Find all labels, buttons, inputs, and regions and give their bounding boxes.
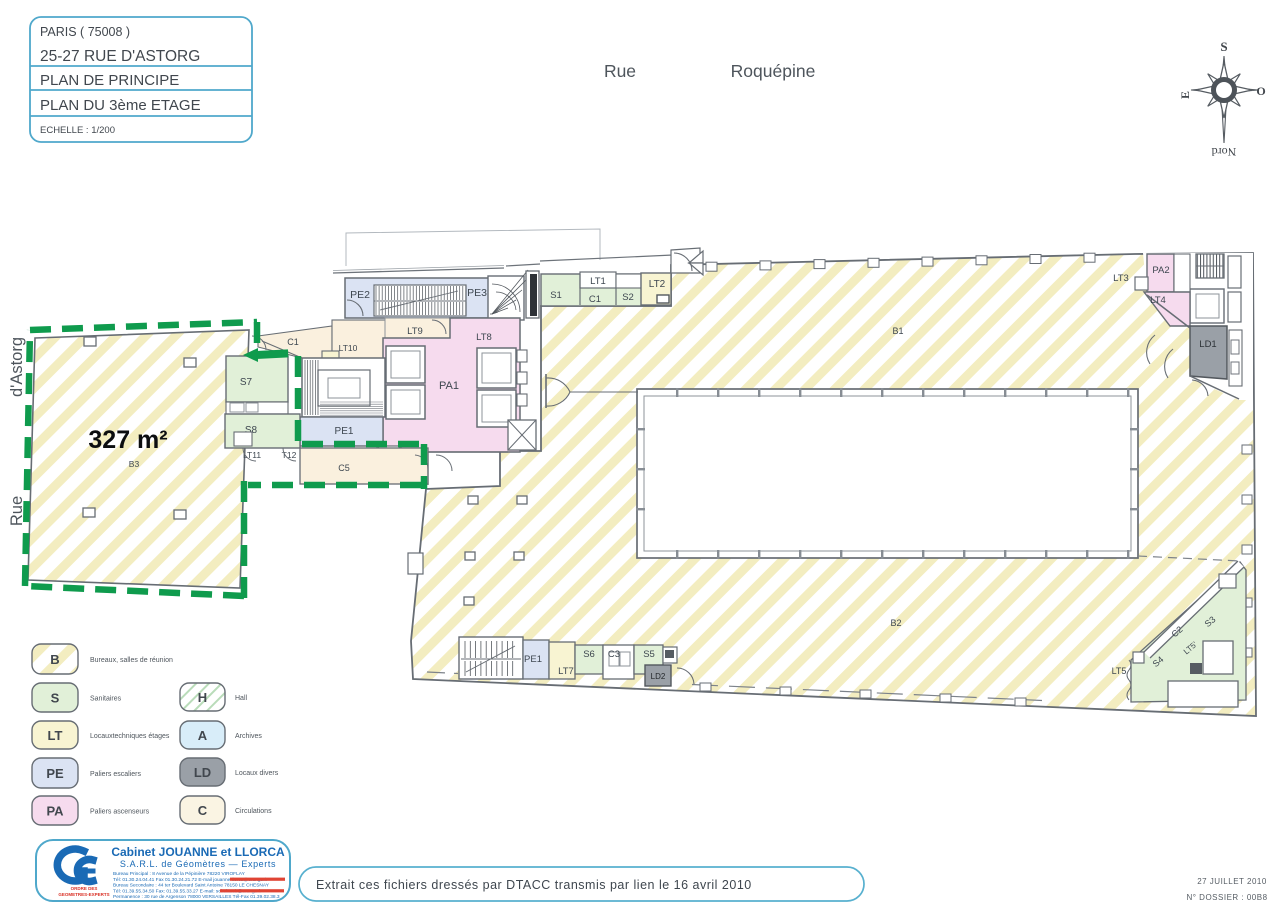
svg-text:ECHELLE : 1/200: ECHELLE : 1/200: [40, 125, 115, 136]
svg-text:Rue: Rue: [8, 496, 26, 526]
svg-text:LT: LT: [48, 728, 63, 743]
svg-text:S1: S1: [550, 290, 562, 301]
svg-text:LD: LD: [194, 765, 211, 780]
svg-text:27 JUILLET 2010: 27 JUILLET 2010: [1197, 877, 1267, 886]
svg-text:Roquépine: Roquépine: [731, 61, 816, 81]
svg-text:C1: C1: [287, 337, 299, 347]
svg-text:C1: C1: [589, 294, 601, 305]
svg-text:C3: C3: [608, 649, 620, 660]
svg-text:S5: S5: [643, 649, 655, 660]
svg-text:PE: PE: [46, 766, 64, 781]
svg-text:LT4: LT4: [1150, 295, 1166, 306]
svg-text:N° DOSSIER : 00B8: N° DOSSIER : 00B8: [1186, 893, 1267, 902]
svg-text:B3: B3: [129, 459, 140, 469]
svg-text:LT11: LT11: [243, 450, 261, 460]
svg-text:PLAN DE PRINCIPE: PLAN DE PRINCIPE: [40, 72, 179, 89]
svg-text:S: S: [1220, 39, 1227, 54]
svg-text:LT5: LT5: [1112, 666, 1127, 676]
svg-text:LD1: LD1: [1199, 339, 1216, 350]
svg-text:Circulations: Circulations: [235, 808, 272, 815]
svg-text:LT2: LT2: [649, 279, 666, 290]
svg-text:Paliers escaliers: Paliers escaliers: [90, 771, 141, 778]
svg-text:LD2: LD2: [651, 672, 666, 681]
svg-text:C: C: [198, 803, 208, 818]
svg-text:B2: B2: [890, 618, 901, 628]
svg-text:ORDRE DES: ORDRE DES: [71, 886, 98, 891]
svg-text:A: A: [198, 728, 208, 743]
svg-text:Nord: Nord: [1212, 145, 1237, 159]
svg-text:Bureau Principal : 8 Avenue de: Bureau Principal : 8 Avenue de la Pépini…: [113, 871, 246, 877]
svg-text:C5: C5: [338, 463, 350, 473]
svg-text:H: H: [198, 690, 207, 705]
svg-text:PA2: PA2: [1152, 265, 1169, 276]
svg-text:LT9: LT9: [407, 326, 423, 337]
svg-text:PE2: PE2: [350, 289, 370, 301]
svg-text:PE3: PE3: [467, 287, 487, 299]
svg-text:PARIS ( 75008 ): PARIS ( 75008 ): [40, 25, 130, 39]
svg-text:Archives: Archives: [235, 733, 262, 740]
svg-text:B1: B1: [892, 326, 903, 336]
svg-text:Hall: Hall: [235, 695, 248, 702]
svg-text:PLAN DU 3ème ETAGE: PLAN DU 3ème ETAGE: [40, 97, 201, 114]
svg-text:B: B: [50, 652, 59, 667]
svg-text:PE1: PE1: [335, 426, 354, 437]
svg-text:Extrait ces fichiers dressé: Extrait ces fichiers dressés par DTACC t…: [316, 878, 752, 892]
svg-text:PA1: PA1: [439, 380, 459, 392]
svg-text:O: O: [1256, 84, 1265, 98]
svg-text:d'Astorg: d'Astorg: [8, 337, 26, 397]
svg-text:LT7: LT7: [558, 666, 574, 677]
svg-text:Rue: Rue: [604, 61, 636, 81]
svg-text:LT8: LT8: [476, 332, 492, 343]
svg-text:PA: PA: [46, 804, 64, 819]
svg-text:S7: S7: [240, 377, 253, 388]
svg-text:LT1: LT1: [590, 276, 606, 287]
svg-text:Locaux divers: Locaux divers: [235, 770, 279, 777]
svg-text:S: S: [51, 691, 60, 706]
svg-text:PE1: PE1: [524, 654, 542, 665]
svg-text:S6: S6: [583, 649, 595, 660]
svg-text:LT10: LT10: [339, 343, 358, 353]
svg-text:E: E: [1178, 91, 1192, 99]
svg-text:GEOMETRES-EXPERTS: GEOMETRES-EXPERTS: [58, 892, 109, 897]
svg-text:Cabinet JOUANNE et LLORCA: Cabinet JOUANNE et LLORCA: [111, 845, 285, 859]
svg-text:Paliers ascenseurs: Paliers ascenseurs: [90, 809, 150, 816]
svg-text:Permanence : 30 rue de Argenso: Permanence : 30 rue de Argenson 78000 VE…: [113, 894, 280, 900]
svg-text:S2: S2: [622, 292, 634, 303]
svg-text:Bureau Secondaire : 44 ter Bou: Bureau Secondaire : 44 ter Boulevard Sai…: [113, 883, 270, 889]
svg-text:LT3: LT3: [1113, 273, 1129, 284]
svg-text:Locauxtechniques étages: Locauxtechniques étages: [90, 733, 170, 740]
svg-text:25-27 RUE D'ASTORG: 25-27 RUE D'ASTORG: [40, 48, 200, 65]
svg-text:Sanitaires: Sanitaires: [90, 696, 122, 703]
svg-text:Bureaux, salles de réunion: Bureaux, salles de réunion: [90, 657, 173, 664]
svg-text:S.A.R.L. de Géomètres — Ex: S.A.R.L. de Géomètres — Experts: [120, 859, 276, 869]
svg-text:327 m²: 327 m²: [88, 426, 167, 454]
